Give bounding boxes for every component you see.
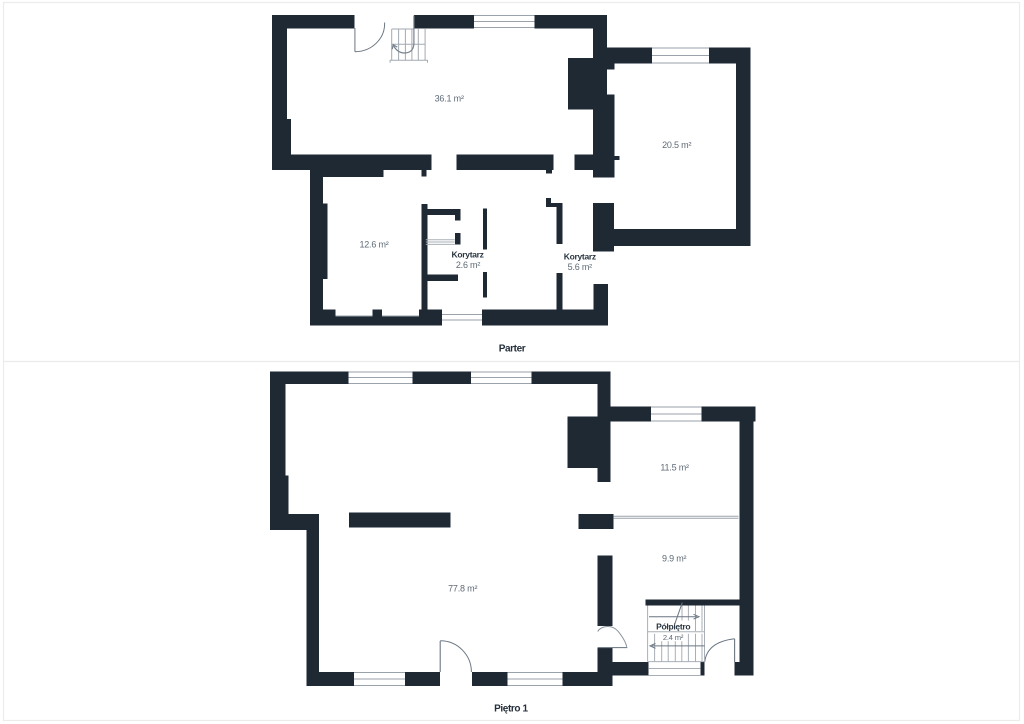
svg-text:11.5 m²: 11.5 m² [660, 463, 689, 473]
svg-text:20.5 m²: 20.5 m² [662, 140, 691, 150]
svg-text:Parter: Parter [499, 344, 526, 355]
svg-text:2.6 m²: 2.6 m² [456, 260, 481, 270]
svg-text:Półpiętro: Półpiętro [656, 622, 690, 632]
svg-text:9.9 m²: 9.9 m² [662, 553, 687, 563]
svg-text:12.6 m²: 12.6 m² [359, 239, 388, 249]
svg-text:Korytarz: Korytarz [564, 252, 596, 262]
svg-text:5.6 m²: 5.6 m² [568, 262, 593, 272]
svg-text:Piętro 1: Piętro 1 [494, 704, 528, 715]
svg-text:2.4 m²: 2.4 m² [663, 633, 684, 642]
svg-text:77.8 m²: 77.8 m² [448, 583, 477, 593]
svg-text:Korytarz: Korytarz [452, 250, 484, 260]
svg-text:36.1 m²: 36.1 m² [435, 94, 464, 104]
